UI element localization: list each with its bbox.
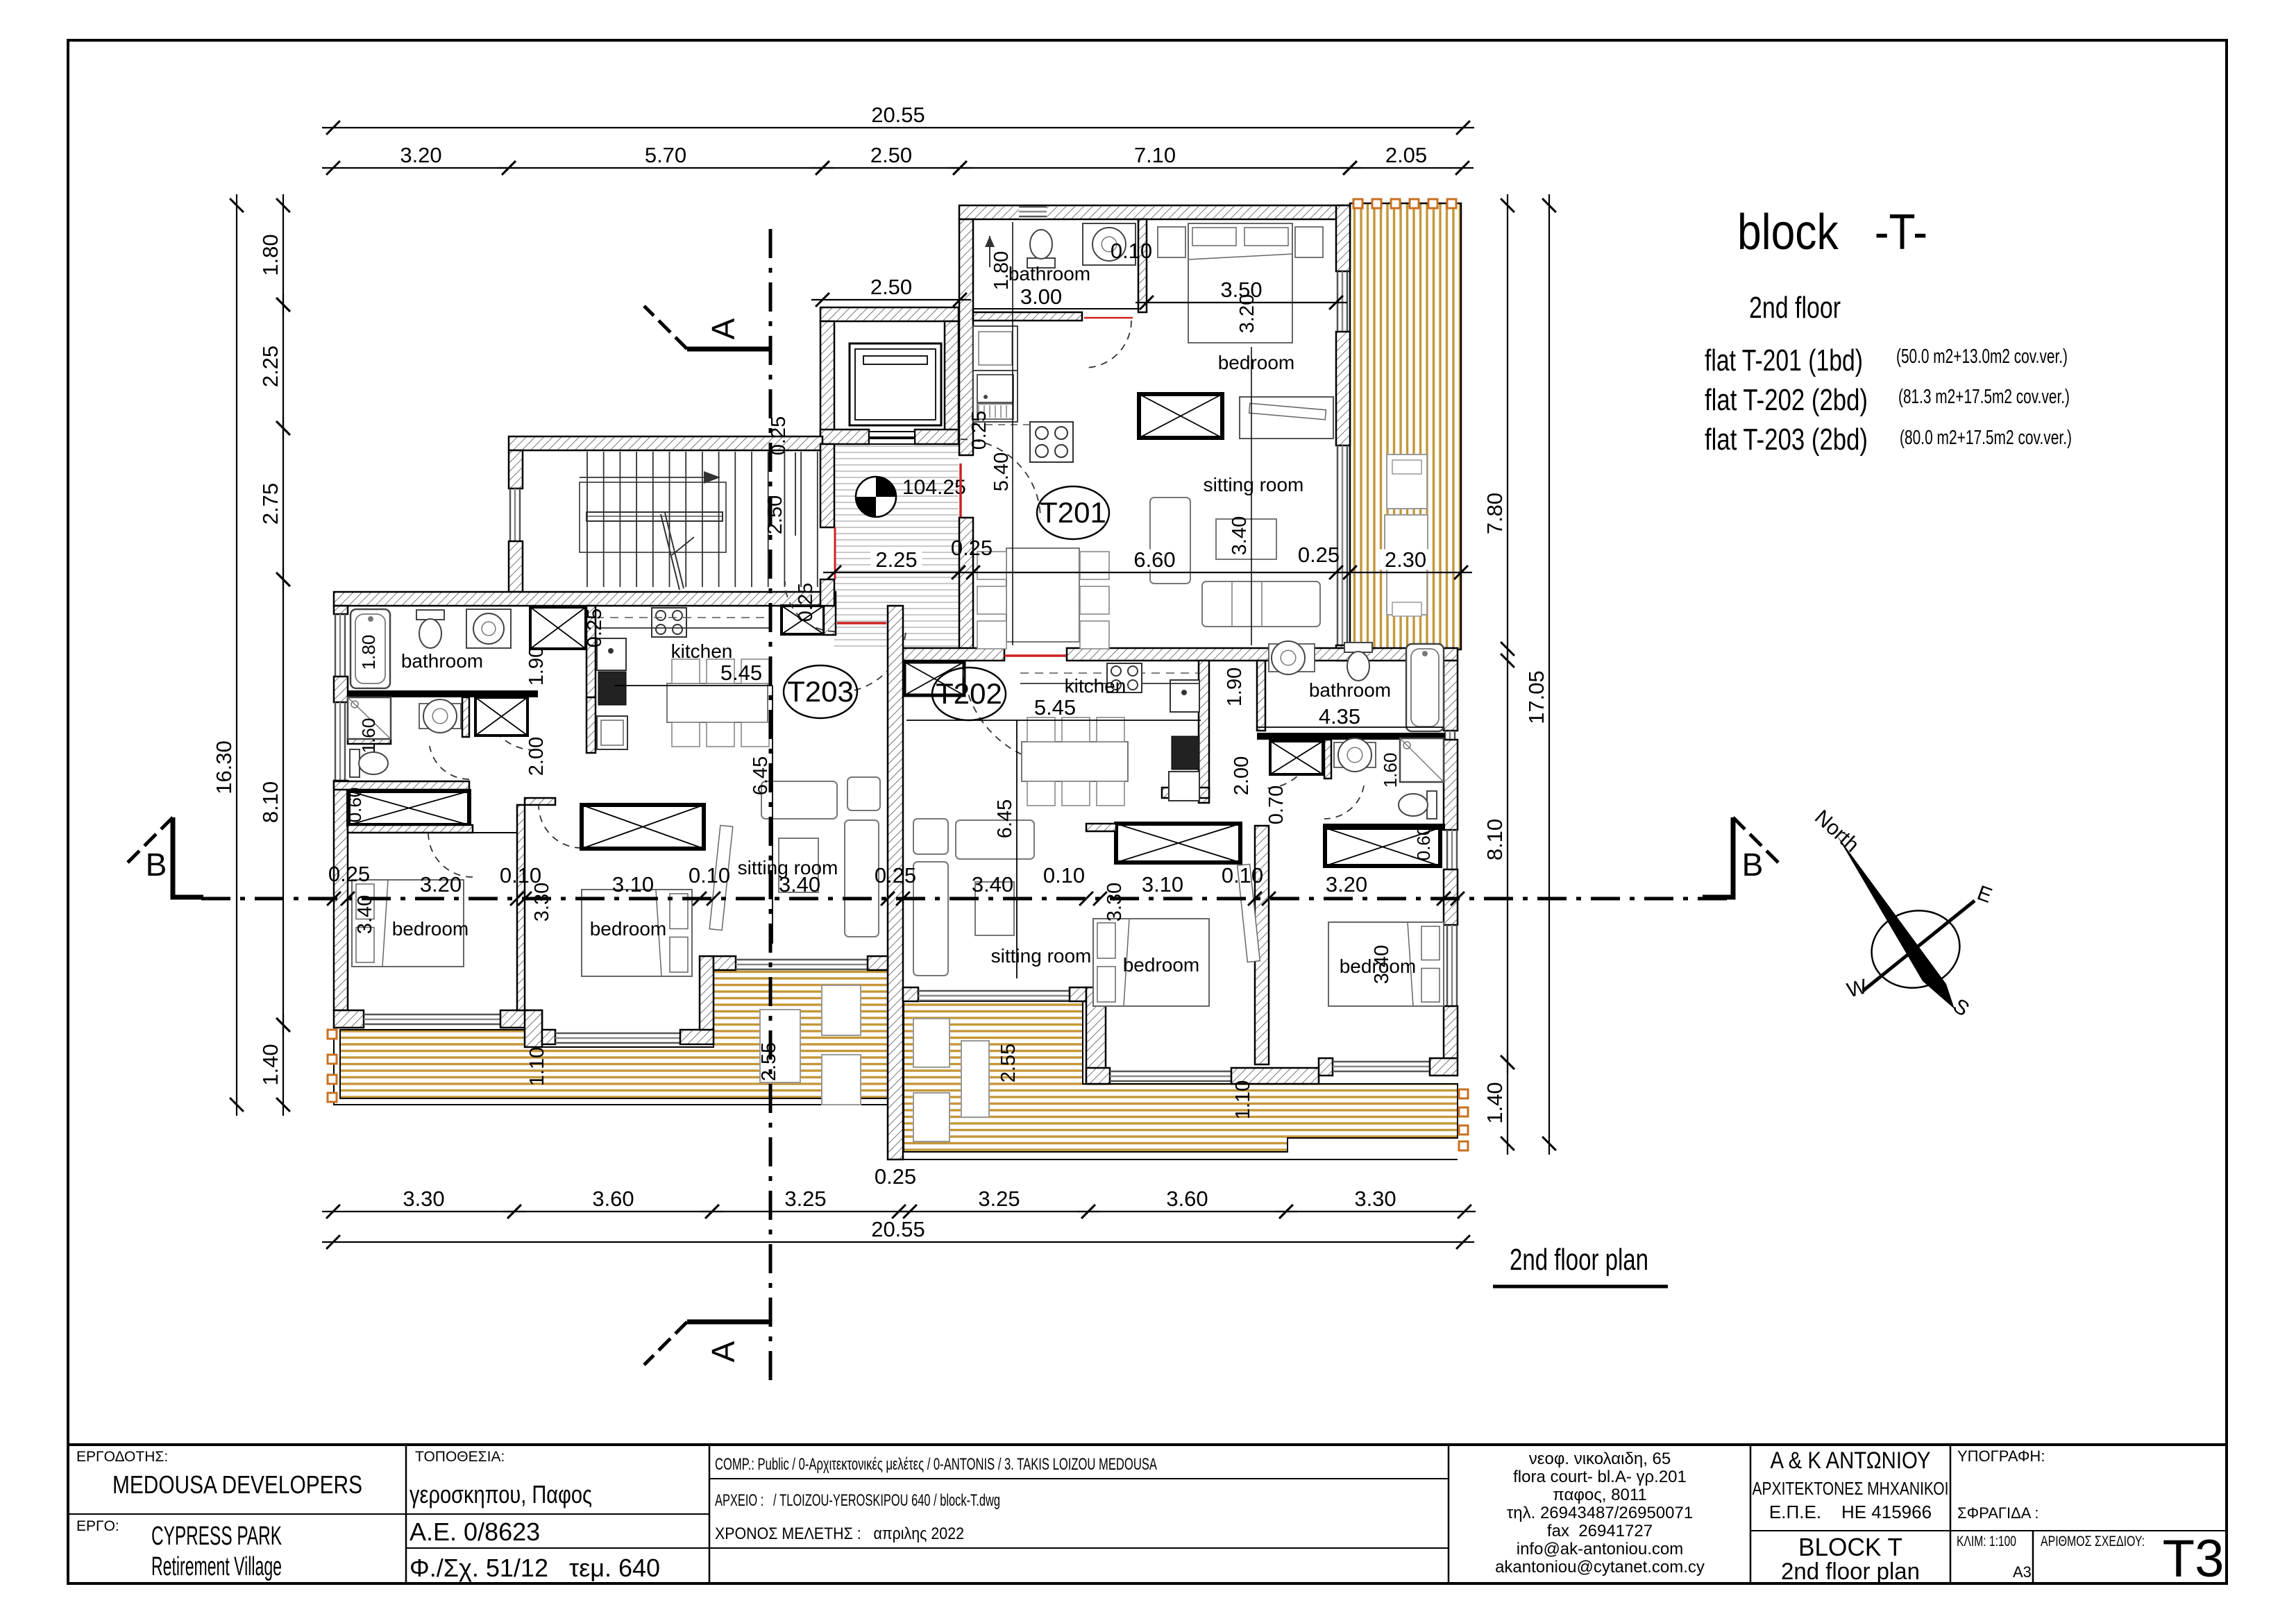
svg-text:ΕΡΓΟ:: ΕΡΓΟ: xyxy=(76,1518,119,1534)
svg-text:Α.Ε. 0/8623: Α.Ε. 0/8623 xyxy=(410,1518,540,1546)
svg-text:T202: T202 xyxy=(936,677,1002,710)
svg-text:CYPRESS PARK: CYPRESS PARK xyxy=(151,1522,282,1551)
svg-text:3.20: 3.20 xyxy=(420,872,462,897)
svg-text:2.55: 2.55 xyxy=(758,1042,780,1081)
svg-text:Retirement Village: Retirement Village xyxy=(151,1552,282,1581)
svg-text:104.25: 104.25 xyxy=(902,476,966,499)
svg-text:ΑΡΧΕΙΟ : / TLOIZOU-YEROSKIPO: ΑΡΧΕΙΟ : / TLOIZOU-YEROSKIPOU 640 / bloc… xyxy=(715,1491,1000,1510)
svg-text:0.25: 0.25 xyxy=(328,862,370,886)
svg-text:16.30: 16.30 xyxy=(212,740,236,794)
svg-text:3.40: 3.40 xyxy=(1229,516,1251,555)
svg-text:γεροσκηπου, Παφος: γεροσκηπου, Παφος xyxy=(410,1480,592,1509)
svg-text:ΥΠΟΓΡΑΦΗ:: ΥΠΟΓΡΑΦΗ: xyxy=(1957,1447,2045,1465)
svg-text:T203: T203 xyxy=(787,675,854,708)
svg-text:2.50: 2.50 xyxy=(764,495,786,534)
svg-text:0.70: 0.70 xyxy=(1265,785,1288,824)
svg-text:ΑΡΙΘΜΟΣ ΣΧΕΔΙΟΥ:: ΑΡΙΘΜΟΣ ΣΧΕΔΙΟΥ: xyxy=(2041,1533,2145,1549)
svg-text:1.90: 1.90 xyxy=(1224,668,1246,706)
svg-text:bathroom: bathroom xyxy=(401,650,483,672)
svg-text:info@ak-antoniou.com: info@ak-antoniou.com xyxy=(1517,1540,1684,1558)
svg-text:3.60: 3.60 xyxy=(1166,1187,1208,1211)
svg-text:bedroom: bedroom xyxy=(1218,352,1295,373)
svg-text:Ε.Π.Ε. ΗΕ 415966: Ε.Π.Ε. ΗΕ 415966 xyxy=(1769,1502,1932,1522)
svg-text:bathroom: bathroom xyxy=(1008,263,1090,284)
svg-text:kitchen: kitchen xyxy=(1065,675,1126,697)
svg-text:bathroom: bathroom xyxy=(1309,679,1391,701)
svg-text:BLOCK T: BLOCK T xyxy=(1798,1533,1902,1561)
svg-text:(80.0 m2+17.5m2 cov.ver.): (80.0 m2+17.5m2 cov.ver.) xyxy=(1900,427,2072,449)
svg-text:3.25: 3.25 xyxy=(784,1187,826,1211)
svg-text:flat T-201 (1bd): flat T-201 (1bd) xyxy=(1705,343,1863,377)
svg-text:Α & Κ ΑΝΤΩΝΙΟΥ: Α & Κ ΑΝΤΩΝΙΟΥ xyxy=(1771,1447,1931,1474)
svg-text:20.55: 20.55 xyxy=(871,103,925,127)
svg-text:2.50: 2.50 xyxy=(870,275,912,299)
svg-text:0.25: 0.25 xyxy=(584,609,606,647)
svg-text:2.30: 2.30 xyxy=(1385,547,1426,572)
svg-text:7.80: 7.80 xyxy=(1483,493,1507,534)
svg-text:sitting room: sitting room xyxy=(991,945,1092,967)
svg-text:bedroom: bedroom xyxy=(590,918,667,940)
svg-text:5.45: 5.45 xyxy=(1034,695,1076,720)
svg-text:2.50: 2.50 xyxy=(870,143,912,167)
svg-text:flat T-203 (2bd): flat T-203 (2bd) xyxy=(1705,423,1868,457)
svg-text:(50.0 m2+13.0m2 cov.ver.): (50.0 m2+13.0m2 cov.ver.) xyxy=(1896,346,2068,368)
svg-text:MEDOUSA DEVELOPERS: MEDOUSA DEVELOPERS xyxy=(112,1470,362,1499)
svg-text:bedroom: bedroom xyxy=(392,918,469,940)
svg-text:3.30: 3.30 xyxy=(531,883,553,921)
svg-text:1.90: 1.90 xyxy=(525,647,548,686)
svg-text:17.05: 17.05 xyxy=(1524,670,1548,724)
svg-text:flat T-202 (2bd): flat T-202 (2bd) xyxy=(1705,383,1868,417)
svg-text:3.60: 3.60 xyxy=(592,1187,634,1211)
svg-text:2.00: 2.00 xyxy=(525,737,548,776)
svg-text:5.45: 5.45 xyxy=(720,661,762,685)
svg-text:νεοφ. νικολαιδη, 65: νεοφ. νικολαιδη, 65 xyxy=(1529,1450,1671,1468)
svg-text:1.60: 1.60 xyxy=(1380,753,1401,788)
svg-text:6.45: 6.45 xyxy=(750,756,772,795)
svg-text:τηλ. 26943487/26950071: τηλ. 26943487/26950071 xyxy=(1507,1504,1693,1522)
svg-text:A3: A3 xyxy=(2013,1563,2032,1581)
svg-text:sitting room: sitting room xyxy=(1204,474,1304,495)
svg-text:ΤΟΠΟΘΕΣΙΑ:: ΤΟΠΟΘΕΣΙΑ: xyxy=(415,1449,505,1465)
svg-text:1.40: 1.40 xyxy=(1483,1082,1507,1123)
svg-text:2.55: 2.55 xyxy=(997,1044,1020,1082)
svg-text:0.25: 0.25 xyxy=(968,411,990,450)
svg-text:1.80: 1.80 xyxy=(358,635,379,670)
svg-text:4.35: 4.35 xyxy=(1319,704,1360,729)
svg-text:3.30: 3.30 xyxy=(1354,1187,1396,1211)
svg-text:ΧΡΟΝΟΣ ΜΕΛΕΤΗΣ : απριλης 202: ΧΡΟΝΟΣ ΜΕΛΕΤΗΣ : απριλης 2022 xyxy=(715,1524,964,1543)
svg-text:20.55: 20.55 xyxy=(871,1217,925,1241)
svg-text:παφος, 8011: παφος, 8011 xyxy=(1553,1486,1647,1504)
svg-text:3.40: 3.40 xyxy=(972,872,1013,897)
svg-text:2nd floor plan: 2nd floor plan xyxy=(1510,1243,1648,1277)
svg-text:1.10: 1.10 xyxy=(1232,1080,1254,1119)
svg-text:0.25: 0.25 xyxy=(875,863,916,887)
svg-text:1.80: 1.80 xyxy=(990,251,1013,290)
svg-text:3.30: 3.30 xyxy=(1104,883,1126,921)
svg-text:8.10: 8.10 xyxy=(258,781,282,823)
svg-text:3.30: 3.30 xyxy=(403,1187,444,1211)
svg-text:block -T-: block -T- xyxy=(1737,205,1927,260)
svg-text:3.40: 3.40 xyxy=(1371,945,1393,984)
svg-text:ΑΡΧΙΤΕΚΤΟΝΕΣ ΜΗΧΑΝΙΚΟΙ: ΑΡΧΙΤΕΚΤΟΝΕΣ ΜΗΧΑΝΙΚΟΙ xyxy=(1753,1478,1949,1499)
svg-text:3.20: 3.20 xyxy=(400,143,441,167)
svg-text:3.00: 3.00 xyxy=(1020,284,1062,309)
svg-text:6.45: 6.45 xyxy=(994,799,1016,838)
svg-text:T201: T201 xyxy=(1040,496,1106,529)
svg-text:1.40: 1.40 xyxy=(258,1044,282,1085)
svg-text:Φ./Σχ. 51/12 τεμ. 640: Φ./Σχ. 51/12 τεμ. 640 xyxy=(410,1554,660,1582)
svg-text:3.20: 3.20 xyxy=(1326,872,1367,897)
svg-text:1.60: 1.60 xyxy=(358,718,379,754)
svg-text:ΕΡΓΟΔΟΤΗΣ:: ΕΡΓΟΔΟΤΗΣ: xyxy=(76,1449,168,1465)
svg-text:A: A xyxy=(705,1341,741,1362)
svg-text:5.40: 5.40 xyxy=(990,452,1013,491)
svg-text:T3: T3 xyxy=(2163,1529,2225,1588)
svg-text:fax 26941727: fax 26941727 xyxy=(1547,1522,1653,1540)
svg-text:2.75: 2.75 xyxy=(258,483,282,525)
svg-text:1.10: 1.10 xyxy=(526,1047,548,1086)
svg-text:ΚΛΙΜ: 1:100: ΚΛΙΜ: 1:100 xyxy=(1957,1533,2016,1549)
svg-text:B: B xyxy=(146,847,167,883)
svg-text:2.25: 2.25 xyxy=(258,346,282,387)
svg-text:3.40: 3.40 xyxy=(354,895,376,934)
svg-text:5.70: 5.70 xyxy=(645,143,686,167)
svg-text:1.80: 1.80 xyxy=(258,234,282,275)
svg-text:akantoniou@cytanet.com.cy: akantoniou@cytanet.com.cy xyxy=(1495,1558,1705,1577)
svg-text:2nd floor plan: 2nd floor plan xyxy=(1781,1558,1920,1585)
svg-text:7.10: 7.10 xyxy=(1134,143,1176,167)
svg-text:0.10: 0.10 xyxy=(689,863,730,887)
svg-text:0.10: 0.10 xyxy=(1111,239,1152,263)
svg-text:A: A xyxy=(705,318,741,339)
svg-text:COMP.: Public / 0-Αρχιτεκτονικ: COMP.: Public / 0-Αρχιτεκτονικές μελέτες… xyxy=(715,1455,1157,1474)
svg-text:6.60: 6.60 xyxy=(1133,547,1175,572)
svg-text:0.10: 0.10 xyxy=(1043,863,1085,887)
svg-text:0.10: 0.10 xyxy=(1222,863,1263,887)
svg-text:2.00: 2.00 xyxy=(1231,756,1253,795)
svg-text:0.25: 0.25 xyxy=(951,536,993,560)
svg-text:ΣΦΡΑΓΙΔΑ :: ΣΦΡΑΓΙΔΑ : xyxy=(1957,1504,2038,1522)
svg-text:bedroom: bedroom xyxy=(1123,954,1200,976)
svg-text:3.10: 3.10 xyxy=(1142,872,1183,897)
svg-text:0.25: 0.25 xyxy=(875,1164,916,1189)
svg-text:2nd floor: 2nd floor xyxy=(1749,291,1841,325)
svg-text:3.10: 3.10 xyxy=(612,872,654,897)
svg-text:3.40: 3.40 xyxy=(779,872,820,897)
svg-text:0.60: 0.60 xyxy=(344,788,365,823)
svg-text:B: B xyxy=(1742,847,1764,883)
svg-text:0.25: 0.25 xyxy=(768,416,790,455)
svg-text:flora court- bl.A- γρ.201: flora court- bl.A- γρ.201 xyxy=(1513,1468,1687,1486)
svg-text:0.25: 0.25 xyxy=(795,583,817,622)
svg-text:(81.3 m2+17.5m2 cov.ver.): (81.3 m2+17.5m2 cov.ver.) xyxy=(1898,386,2070,408)
svg-text:3.20: 3.20 xyxy=(1236,294,1258,333)
svg-text:2.05: 2.05 xyxy=(1385,143,1427,167)
svg-text:8.10: 8.10 xyxy=(1483,819,1507,860)
svg-text:0.60: 0.60 xyxy=(1413,826,1434,861)
svg-text:0.25: 0.25 xyxy=(1298,543,1340,567)
svg-text:2.25: 2.25 xyxy=(875,547,917,572)
svg-text:3.25: 3.25 xyxy=(978,1187,1020,1211)
